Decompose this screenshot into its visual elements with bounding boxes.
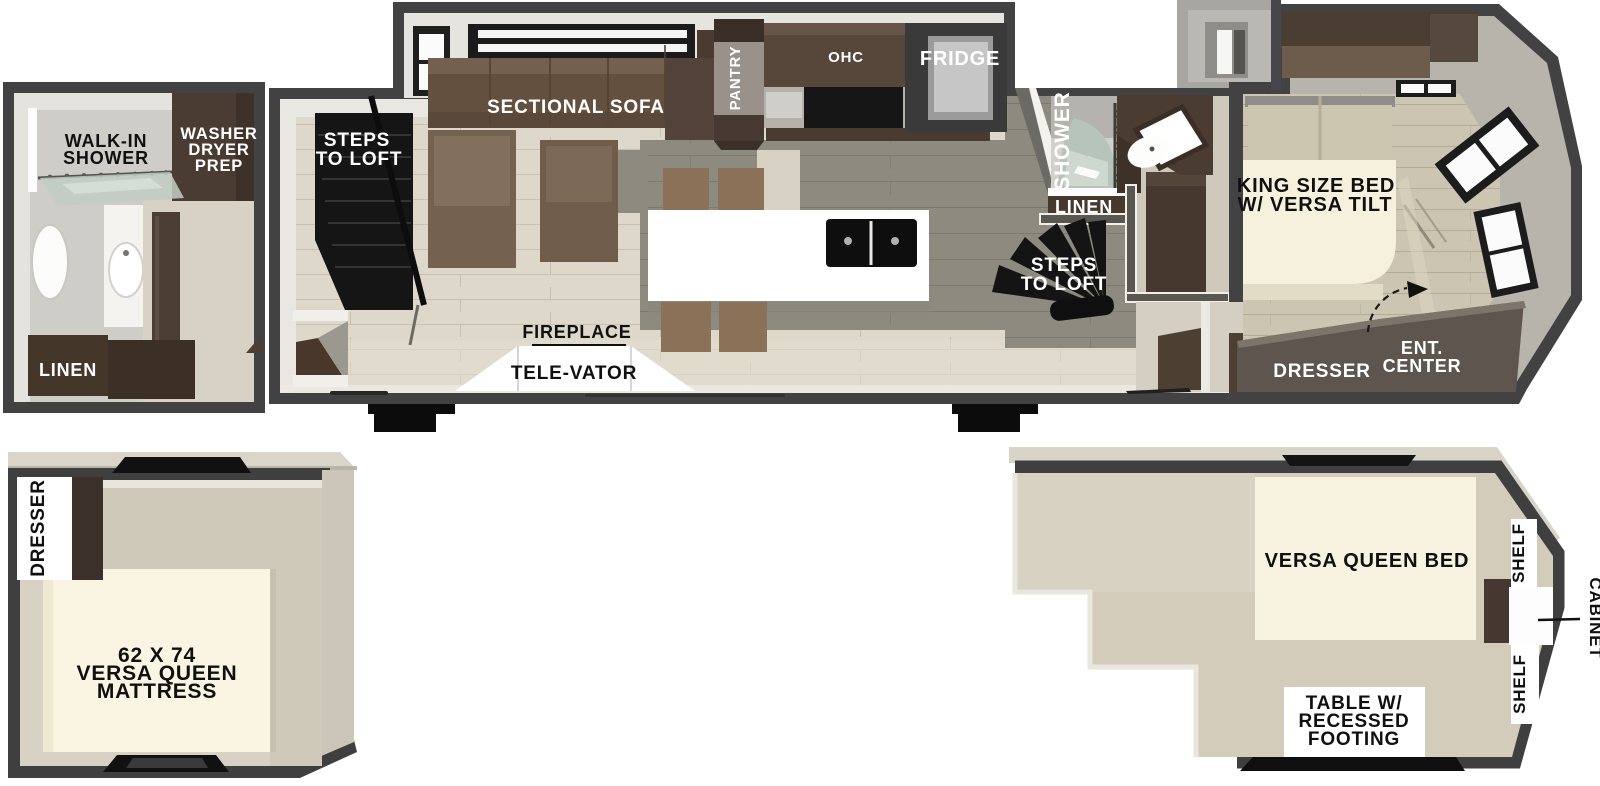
svg-text:SHOWER: SHOWER <box>63 148 149 168</box>
svg-text:ENT.: ENT. <box>1401 338 1443 358</box>
svg-text:FRIDGE: FRIDGE <box>920 48 1000 70</box>
svg-text:CABINET: CABINET <box>1586 577 1600 658</box>
svg-text:FIREPLACE: FIREPLACE <box>522 322 631 342</box>
svg-text:MATTRESS: MATTRESS <box>97 680 217 703</box>
svg-text:SECTIONAL SOFA: SECTIONAL SOFA <box>487 97 665 118</box>
svg-text:PREP: PREP <box>195 157 243 175</box>
svg-text:FOOTING: FOOTING <box>1308 729 1400 750</box>
svg-text:TO LOFT: TO LOFT <box>316 149 403 170</box>
svg-text:CENTER: CENTER <box>1383 356 1462 376</box>
svg-text:SHOWER: SHOWER <box>1051 91 1074 190</box>
svg-text:PANTRY: PANTRY <box>727 46 744 111</box>
svg-text:TELE-VATOR: TELE-VATOR <box>511 363 637 384</box>
svg-text:LINEN: LINEN <box>39 360 97 380</box>
svg-text:VERSA QUEEN BED: VERSA QUEEN BED <box>1265 550 1470 572</box>
svg-text:W/ VERSA TILT: W/ VERSA TILT <box>1238 194 1393 216</box>
svg-text:SHELF: SHELF <box>1510 654 1529 714</box>
svg-text:TO LOFT: TO LOFT <box>1021 274 1108 295</box>
svg-text:STEPS: STEPS <box>1031 255 1097 276</box>
svg-text:STEPS: STEPS <box>324 130 390 151</box>
svg-text:DRESSER: DRESSER <box>1273 361 1370 382</box>
svg-text:DRESSER: DRESSER <box>28 479 49 576</box>
svg-text:OHC: OHC <box>828 49 864 66</box>
svg-text:SHELF: SHELF <box>1509 523 1528 583</box>
